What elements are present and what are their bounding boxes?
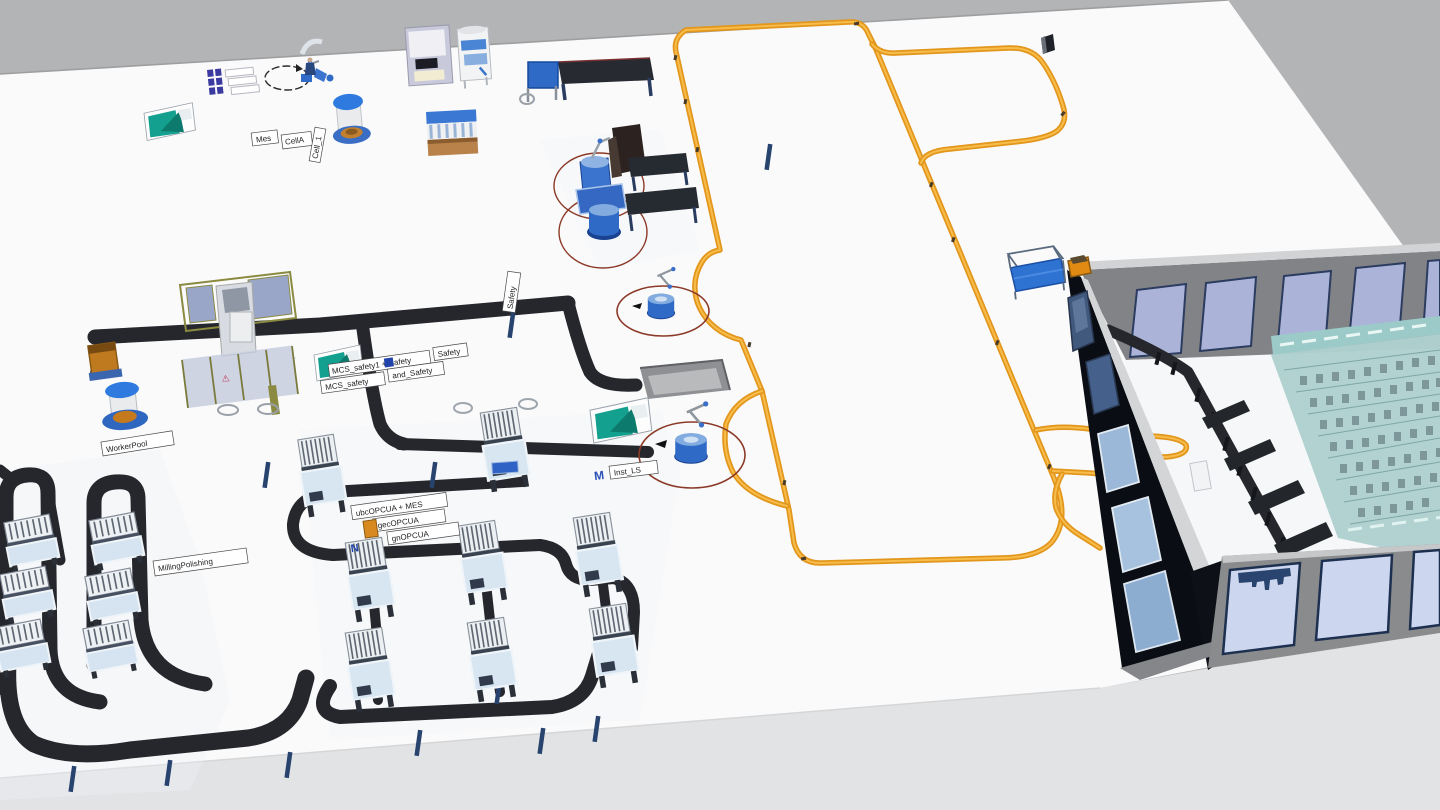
svg-text:Mes: Mes (255, 134, 271, 145)
svg-text:⚠: ⚠ (221, 373, 230, 384)
svg-text:M: M (593, 468, 605, 483)
